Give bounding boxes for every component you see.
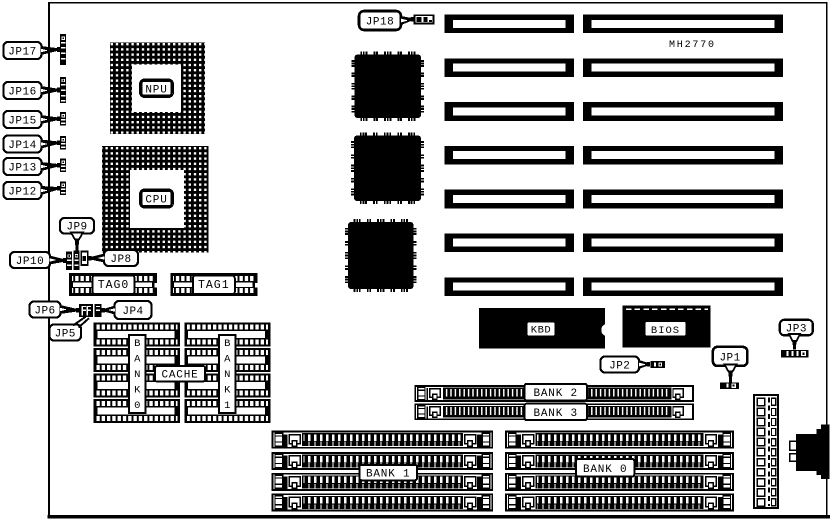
svg-text:TAG0: TAG0 bbox=[98, 279, 130, 292]
svg-text:BIOS: BIOS bbox=[651, 325, 680, 337]
svg-text:TAG1: TAG1 bbox=[198, 279, 230, 292]
svg-text:BANK 3: BANK 3 bbox=[533, 408, 577, 420]
svg-text:JP4: JP4 bbox=[122, 306, 143, 318]
svg-text:K: K bbox=[224, 385, 231, 397]
svg-text:JP8: JP8 bbox=[110, 254, 131, 266]
svg-text:KBD: KBD bbox=[531, 325, 551, 337]
svg-text:0: 0 bbox=[134, 400, 140, 412]
svg-text:JP16: JP16 bbox=[8, 86, 36, 98]
svg-text:JP5: JP5 bbox=[55, 328, 76, 340]
svg-text:MH2770: MH2770 bbox=[669, 40, 716, 51]
svg-text:A: A bbox=[134, 354, 141, 366]
svg-text:JP10: JP10 bbox=[16, 256, 44, 268]
svg-text:JP15: JP15 bbox=[8, 115, 36, 127]
svg-text:N: N bbox=[134, 369, 140, 381]
svg-text:JP13: JP13 bbox=[8, 162, 36, 174]
svg-text:N: N bbox=[224, 369, 230, 381]
svg-text:BANK 1: BANK 1 bbox=[366, 469, 410, 481]
svg-text:B: B bbox=[134, 338, 140, 350]
svg-text:BANK 0: BANK 0 bbox=[583, 464, 627, 476]
svg-text:CPU: CPU bbox=[145, 195, 167, 207]
svg-text:JP6: JP6 bbox=[34, 305, 55, 317]
svg-text:B: B bbox=[224, 338, 230, 350]
svg-text:JP2: JP2 bbox=[609, 360, 630, 372]
svg-text:JP18: JP18 bbox=[366, 16, 394, 28]
svg-text:JP1: JP1 bbox=[719, 352, 740, 364]
svg-text:BANK 2: BANK 2 bbox=[533, 388, 577, 400]
svg-text:NPU: NPU bbox=[145, 84, 167, 96]
svg-text:JP12: JP12 bbox=[8, 186, 36, 198]
svg-text:A: A bbox=[224, 354, 231, 366]
svg-text:K: K bbox=[134, 385, 141, 397]
svg-text:1: 1 bbox=[224, 400, 230, 412]
svg-text:CACHE: CACHE bbox=[161, 370, 198, 382]
svg-text:JP14: JP14 bbox=[8, 140, 36, 152]
svg-text:JP17: JP17 bbox=[8, 46, 36, 58]
